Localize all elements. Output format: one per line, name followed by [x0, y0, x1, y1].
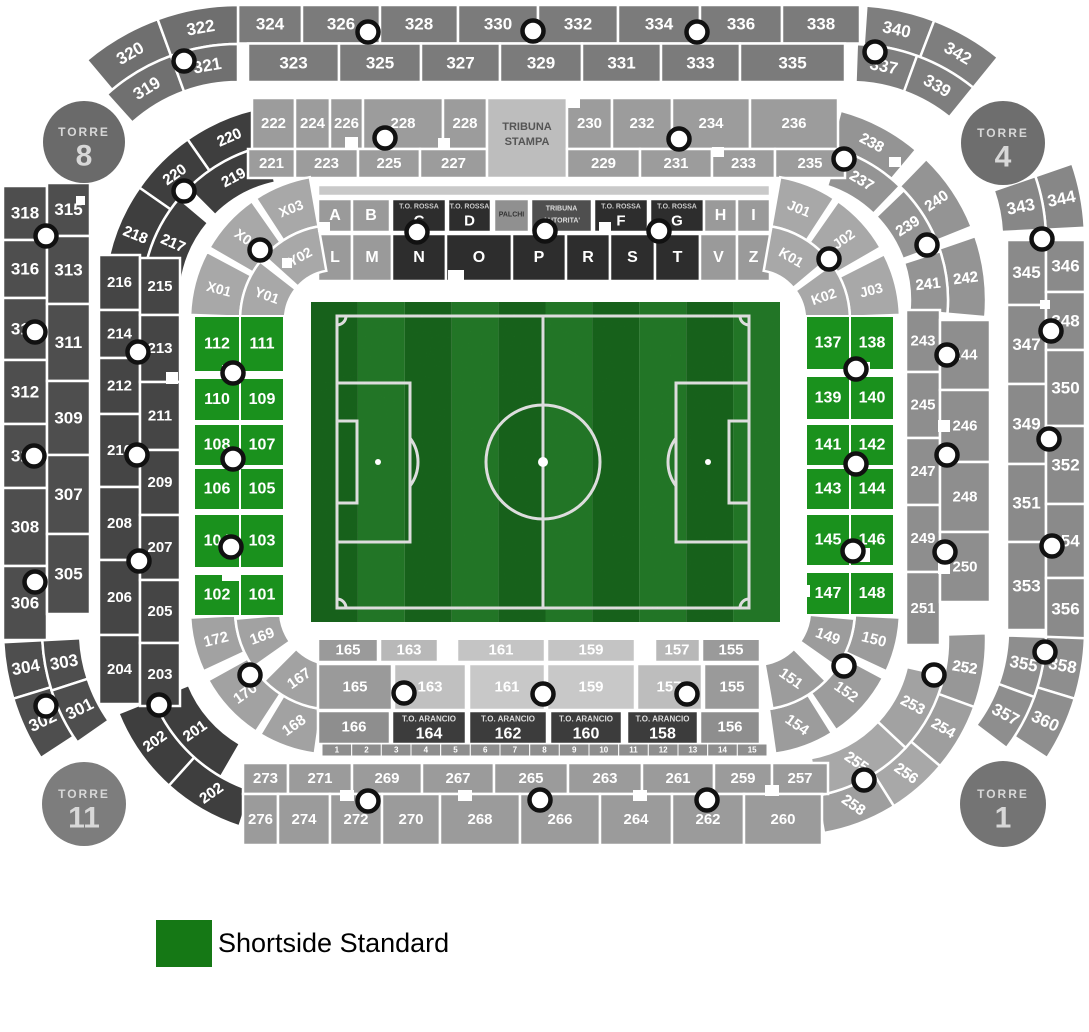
svg-text:156: 156	[717, 719, 742, 736]
svg-text:324: 324	[256, 15, 285, 34]
svg-text:353: 353	[1012, 577, 1040, 596]
svg-text:158: 158	[649, 726, 676, 743]
svg-text:263: 263	[592, 770, 617, 787]
svg-text:162: 162	[495, 726, 522, 743]
svg-text:356: 356	[1051, 600, 1079, 619]
svg-text:144: 144	[859, 481, 886, 498]
svg-text:346: 346	[1051, 257, 1079, 276]
svg-text:165: 165	[335, 642, 360, 659]
svg-text:267: 267	[445, 770, 470, 787]
svg-text:350: 350	[1051, 379, 1079, 398]
svg-text:11: 11	[629, 746, 638, 755]
svg-text:TRIBUNA: TRIBUNA	[546, 206, 578, 213]
svg-text:234: 234	[698, 115, 724, 132]
svg-text:159: 159	[578, 679, 603, 696]
svg-text:332: 332	[564, 15, 592, 34]
svg-text:311: 311	[55, 333, 82, 352]
svg-text:B: B	[365, 207, 377, 224]
svg-text:223: 223	[314, 155, 339, 172]
svg-text:G: G	[671, 213, 683, 230]
svg-text:14: 14	[718, 746, 727, 755]
svg-text:312: 312	[11, 383, 39, 402]
svg-text:112: 112	[204, 336, 230, 353]
svg-text:9: 9	[572, 746, 577, 755]
svg-text:T.O. ARANCIO: T.O. ARANCIO	[636, 715, 690, 724]
svg-text:139: 139	[815, 390, 842, 407]
svg-text:7: 7	[513, 746, 518, 755]
svg-text:137: 137	[815, 335, 842, 352]
svg-text:TORRE: TORRE	[58, 125, 110, 139]
svg-text:228: 228	[452, 115, 477, 132]
svg-text:265: 265	[518, 770, 543, 787]
svg-text:163: 163	[396, 642, 421, 659]
svg-text:140: 140	[859, 390, 886, 407]
svg-text:266: 266	[547, 811, 572, 828]
svg-text:270: 270	[398, 811, 423, 828]
svg-text:PALCHI: PALCHI	[499, 212, 525, 219]
svg-text:Z: Z	[749, 249, 759, 266]
svg-text:T.O. ROSSA: T.O. ROSSA	[601, 204, 641, 211]
svg-text:205: 205	[147, 603, 172, 620]
svg-text:215: 215	[147, 278, 172, 295]
svg-text:145: 145	[815, 532, 842, 549]
svg-text:STAMPA: STAMPA	[505, 136, 550, 148]
svg-text:TORRE: TORRE	[977, 126, 1029, 140]
svg-text:326: 326	[327, 15, 355, 34]
svg-text:352: 352	[1051, 456, 1079, 475]
svg-text:206: 206	[107, 589, 132, 606]
svg-text:273: 273	[253, 770, 278, 787]
svg-text:204: 204	[107, 661, 133, 678]
svg-text:331: 331	[607, 53, 635, 72]
svg-text:209: 209	[147, 474, 172, 491]
svg-text:P: P	[534, 249, 545, 266]
svg-text:211: 211	[148, 408, 172, 425]
svg-text:250: 250	[952, 559, 977, 576]
svg-text:148: 148	[859, 585, 886, 602]
svg-text:TRIBUNA: TRIBUNA	[502, 121, 552, 133]
svg-text:232: 232	[629, 115, 654, 132]
svg-text:335: 335	[778, 53, 806, 72]
svg-text:1: 1	[995, 802, 1012, 835]
svg-text:159: 159	[578, 642, 603, 659]
svg-text:261: 261	[665, 770, 690, 787]
svg-text:15: 15	[748, 746, 757, 755]
svg-text:236: 236	[781, 115, 806, 132]
svg-text:T.O. ROSSA: T.O. ROSSA	[450, 204, 490, 211]
svg-text:R: R	[582, 249, 594, 266]
svg-text:4: 4	[995, 141, 1012, 174]
svg-text:233: 233	[731, 155, 756, 172]
svg-text:3: 3	[394, 746, 399, 755]
svg-text:235: 235	[797, 155, 822, 172]
svg-text:334: 334	[645, 15, 674, 34]
svg-text:105: 105	[249, 481, 276, 498]
svg-text:309: 309	[54, 409, 82, 428]
svg-text:307: 307	[54, 485, 82, 504]
svg-text:142: 142	[859, 437, 886, 454]
svg-text:155: 155	[718, 642, 743, 659]
svg-text:349: 349	[1012, 415, 1040, 434]
svg-text:141: 141	[815, 437, 842, 454]
svg-text:T.O. ARANCIO: T.O. ARANCIO	[559, 715, 613, 724]
svg-text:246: 246	[952, 418, 977, 435]
svg-text:166: 166	[341, 719, 366, 736]
svg-text:313: 313	[54, 261, 82, 280]
svg-text:4: 4	[424, 746, 429, 755]
svg-text:163: 163	[417, 679, 442, 696]
svg-text:268: 268	[467, 811, 492, 828]
svg-text:N: N	[413, 249, 425, 266]
svg-text:225: 225	[376, 155, 401, 172]
svg-text:338: 338	[807, 15, 835, 34]
svg-text:S: S	[627, 249, 638, 266]
svg-text:318: 318	[11, 204, 39, 223]
svg-text:327: 327	[446, 53, 474, 72]
svg-text:10: 10	[599, 746, 608, 755]
svg-text:138: 138	[859, 335, 886, 352]
svg-text:276: 276	[248, 811, 273, 828]
svg-text:323: 323	[279, 53, 307, 72]
svg-text:269: 269	[374, 770, 399, 787]
svg-text:222: 222	[261, 115, 286, 132]
svg-text:260: 260	[770, 811, 795, 828]
svg-text:308: 308	[11, 518, 39, 537]
svg-text:227: 227	[441, 155, 466, 172]
svg-text:351: 351	[1012, 494, 1040, 513]
svg-text:102: 102	[204, 587, 231, 604]
svg-text:13: 13	[688, 746, 697, 755]
svg-text:155: 155	[719, 679, 744, 696]
svg-text:2: 2	[364, 746, 369, 755]
svg-text:306: 306	[11, 594, 39, 613]
svg-text:241: 241	[915, 275, 942, 295]
svg-text:143: 143	[815, 481, 842, 498]
svg-text:V: V	[713, 249, 724, 266]
svg-text:T.O. ROSSA: T.O. ROSSA	[399, 204, 439, 211]
svg-text:224: 224	[300, 115, 326, 132]
svg-text:109: 109	[249, 391, 276, 408]
svg-text:T: T	[673, 249, 683, 266]
svg-text:164: 164	[416, 726, 443, 743]
svg-text:5: 5	[453, 746, 458, 755]
svg-text:107: 107	[249, 437, 276, 454]
svg-text:247: 247	[910, 463, 935, 480]
svg-text:245: 245	[910, 397, 935, 414]
svg-text:213: 213	[147, 340, 172, 357]
svg-text:216: 216	[107, 274, 132, 291]
svg-text:101: 101	[249, 587, 276, 604]
svg-text:212: 212	[107, 378, 132, 395]
svg-text:259: 259	[730, 770, 755, 787]
svg-text:249: 249	[910, 530, 935, 547]
svg-text:11: 11	[68, 802, 100, 835]
svg-text:TORRE: TORRE	[58, 787, 110, 801]
svg-text:203: 203	[147, 666, 172, 683]
svg-text:12: 12	[659, 746, 668, 755]
svg-text:106: 106	[204, 481, 231, 498]
svg-text:165: 165	[342, 679, 367, 696]
svg-text:243: 243	[910, 333, 935, 350]
svg-text:160: 160	[573, 726, 600, 743]
svg-text:221: 221	[259, 155, 284, 172]
svg-text:214: 214	[107, 326, 133, 343]
svg-text:328: 328	[405, 15, 433, 34]
svg-text:257: 257	[787, 770, 812, 787]
svg-text:230: 230	[577, 115, 602, 132]
svg-text:D: D	[464, 213, 475, 230]
svg-text:1: 1	[335, 746, 340, 755]
svg-text:251: 251	[910, 600, 935, 617]
svg-text:T.O. ROSSA: T.O. ROSSA	[657, 204, 697, 211]
svg-text:272: 272	[343, 811, 368, 828]
svg-text:6: 6	[483, 746, 488, 755]
svg-text:305: 305	[54, 565, 82, 584]
svg-text:A: A	[329, 207, 341, 224]
svg-text:M: M	[365, 249, 378, 266]
svg-text:262: 262	[695, 811, 720, 828]
svg-text:T.O. ARANCIO: T.O. ARANCIO	[402, 715, 456, 724]
svg-text:Shortside Standard: Shortside Standard	[218, 928, 449, 958]
svg-text:8: 8	[76, 140, 93, 173]
svg-text:264: 264	[623, 811, 649, 828]
svg-text:103: 103	[249, 533, 276, 550]
svg-text:157: 157	[664, 642, 689, 659]
svg-text:347: 347	[1012, 335, 1040, 354]
svg-text:231: 231	[663, 155, 688, 172]
svg-text:O: O	[473, 249, 485, 266]
svg-text:316: 316	[11, 260, 39, 279]
svg-text:242: 242	[952, 268, 979, 288]
svg-text:110: 110	[204, 391, 230, 408]
svg-text:111: 111	[250, 336, 275, 353]
svg-text:H: H	[715, 207, 727, 224]
svg-text:L: L	[330, 249, 340, 266]
svg-text:I: I	[751, 207, 755, 224]
svg-text:333: 333	[686, 53, 714, 72]
svg-text:336: 336	[727, 15, 755, 34]
svg-text:161: 161	[494, 679, 519, 696]
svg-text:8: 8	[542, 746, 547, 755]
svg-text:329: 329	[527, 53, 555, 72]
svg-text:207: 207	[147, 539, 172, 556]
svg-text:161: 161	[488, 642, 513, 659]
svg-text:147: 147	[815, 585, 842, 602]
svg-text:345: 345	[1012, 263, 1040, 282]
svg-text:TORRE: TORRE	[977, 787, 1029, 801]
svg-text:271: 271	[307, 770, 332, 787]
svg-text:T.O. ARANCIO: T.O. ARANCIO	[481, 715, 535, 724]
svg-text:274: 274	[291, 811, 317, 828]
svg-text:325: 325	[366, 53, 394, 72]
svg-text:229: 229	[591, 155, 616, 172]
svg-text:330: 330	[484, 15, 512, 34]
svg-text:208: 208	[107, 515, 132, 532]
svg-text:248: 248	[952, 489, 977, 506]
svg-text:226: 226	[334, 115, 359, 132]
svg-text:F: F	[616, 213, 625, 230]
